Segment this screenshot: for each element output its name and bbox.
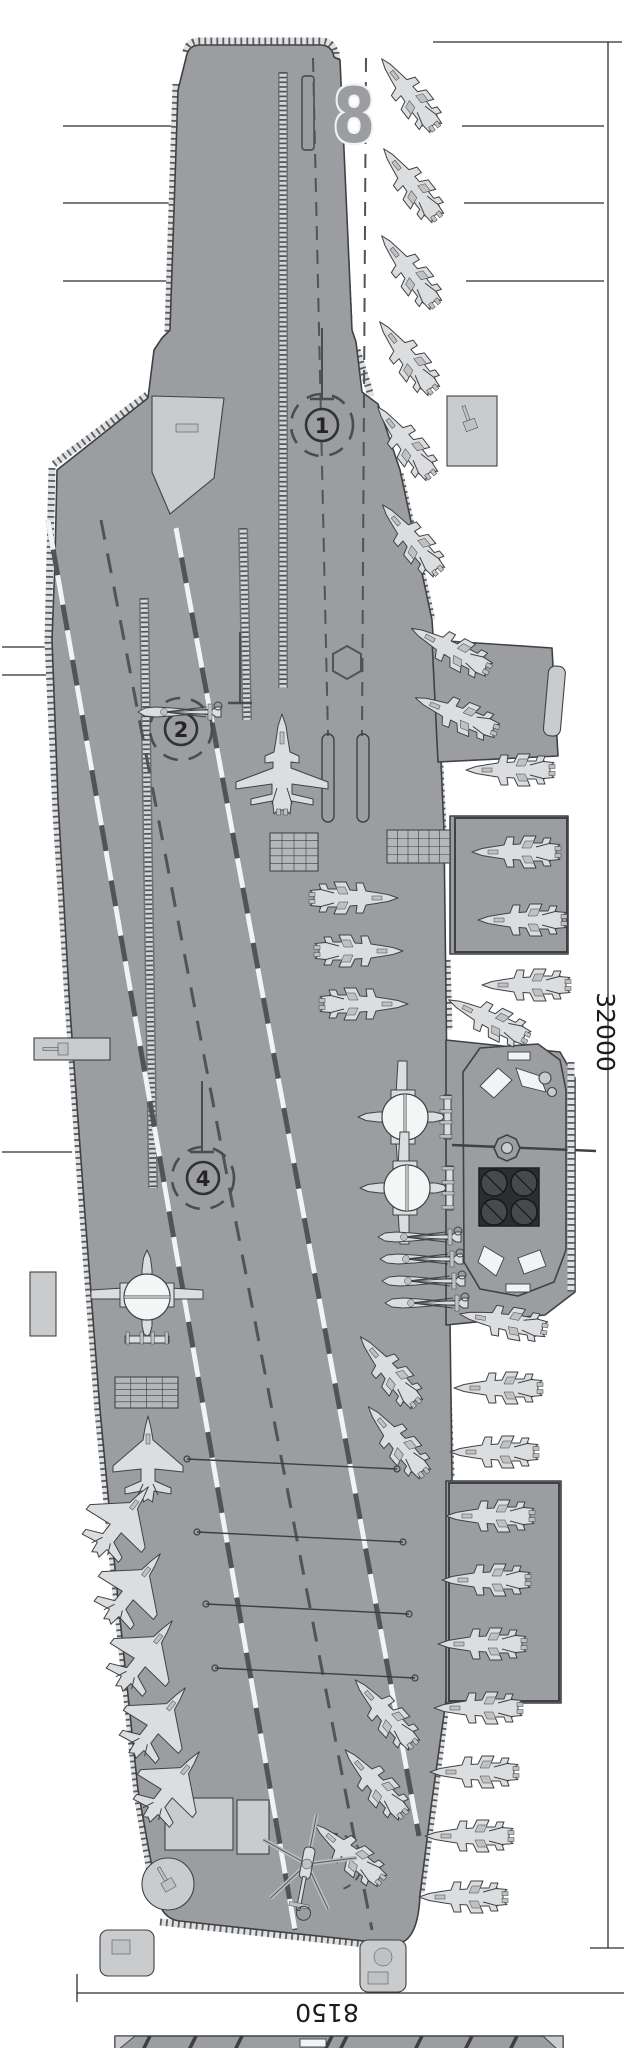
- profile-view-cropped: [115, 2036, 563, 2048]
- bow-deck-number: 8: [333, 72, 375, 160]
- flanker-folded-aircraft: [425, 1820, 514, 1852]
- mast: [502, 1143, 513, 1154]
- bow-catapult-track: [278, 72, 288, 704]
- flanker-folded-aircraft: [450, 1436, 539, 1468]
- flanker-folded-aircraft: [430, 1756, 519, 1788]
- starboard-bow-sponson: [447, 396, 497, 466]
- profile-detail: [300, 2039, 326, 2047]
- flanker-folded-aircraft: [419, 1881, 508, 1913]
- flanker-folded-aircraft: [482, 969, 571, 1001]
- stern-equipment: [368, 1972, 388, 1984]
- stern-equipment: [374, 1948, 392, 1966]
- catapult-spot-number: 2: [174, 718, 189, 742]
- profile-hull-sliver: [115, 2036, 563, 2048]
- length-dimension-label: 32000: [591, 992, 620, 1072]
- radar-dome-icon: [548, 1088, 557, 1097]
- flanker-folded-aircraft: [367, 312, 447, 402]
- grid-panel: [387, 830, 450, 863]
- flanker-folded-aircraft: [371, 139, 451, 229]
- flight-deck: [52, 45, 452, 1944]
- carrier-deck-plan: 32000 8150: [0, 0, 625, 2048]
- deck-cleat: [176, 424, 198, 432]
- aft-window: [506, 1284, 530, 1292]
- radar-dome-icon: [539, 1072, 551, 1084]
- flanker-folded-aircraft: [369, 226, 449, 316]
- stern-equipment: [112, 1940, 130, 1954]
- flanker-folded-aircraft: [454, 1372, 543, 1404]
- width-dimension-label: 8150: [295, 1998, 359, 2027]
- catapult-spot-number: 4: [196, 1167, 211, 1191]
- grid-panel: [115, 1377, 178, 1408]
- bridge-window: [508, 1052, 530, 1060]
- stern-deckhouse: [237, 1800, 269, 1854]
- port-sponson: [30, 1272, 56, 1336]
- stern-deckhouse: [165, 1798, 233, 1850]
- grid-panel: [270, 833, 318, 871]
- island-superstructure: [452, 1044, 596, 1296]
- waist-catapult-track-inner: [243, 528, 247, 720]
- flanker-folded-aircraft: [369, 49, 449, 139]
- deck-plan-drawing: 32000 8150: [0, 0, 625, 2048]
- catapult-spot-number: 1: [315, 414, 330, 438]
